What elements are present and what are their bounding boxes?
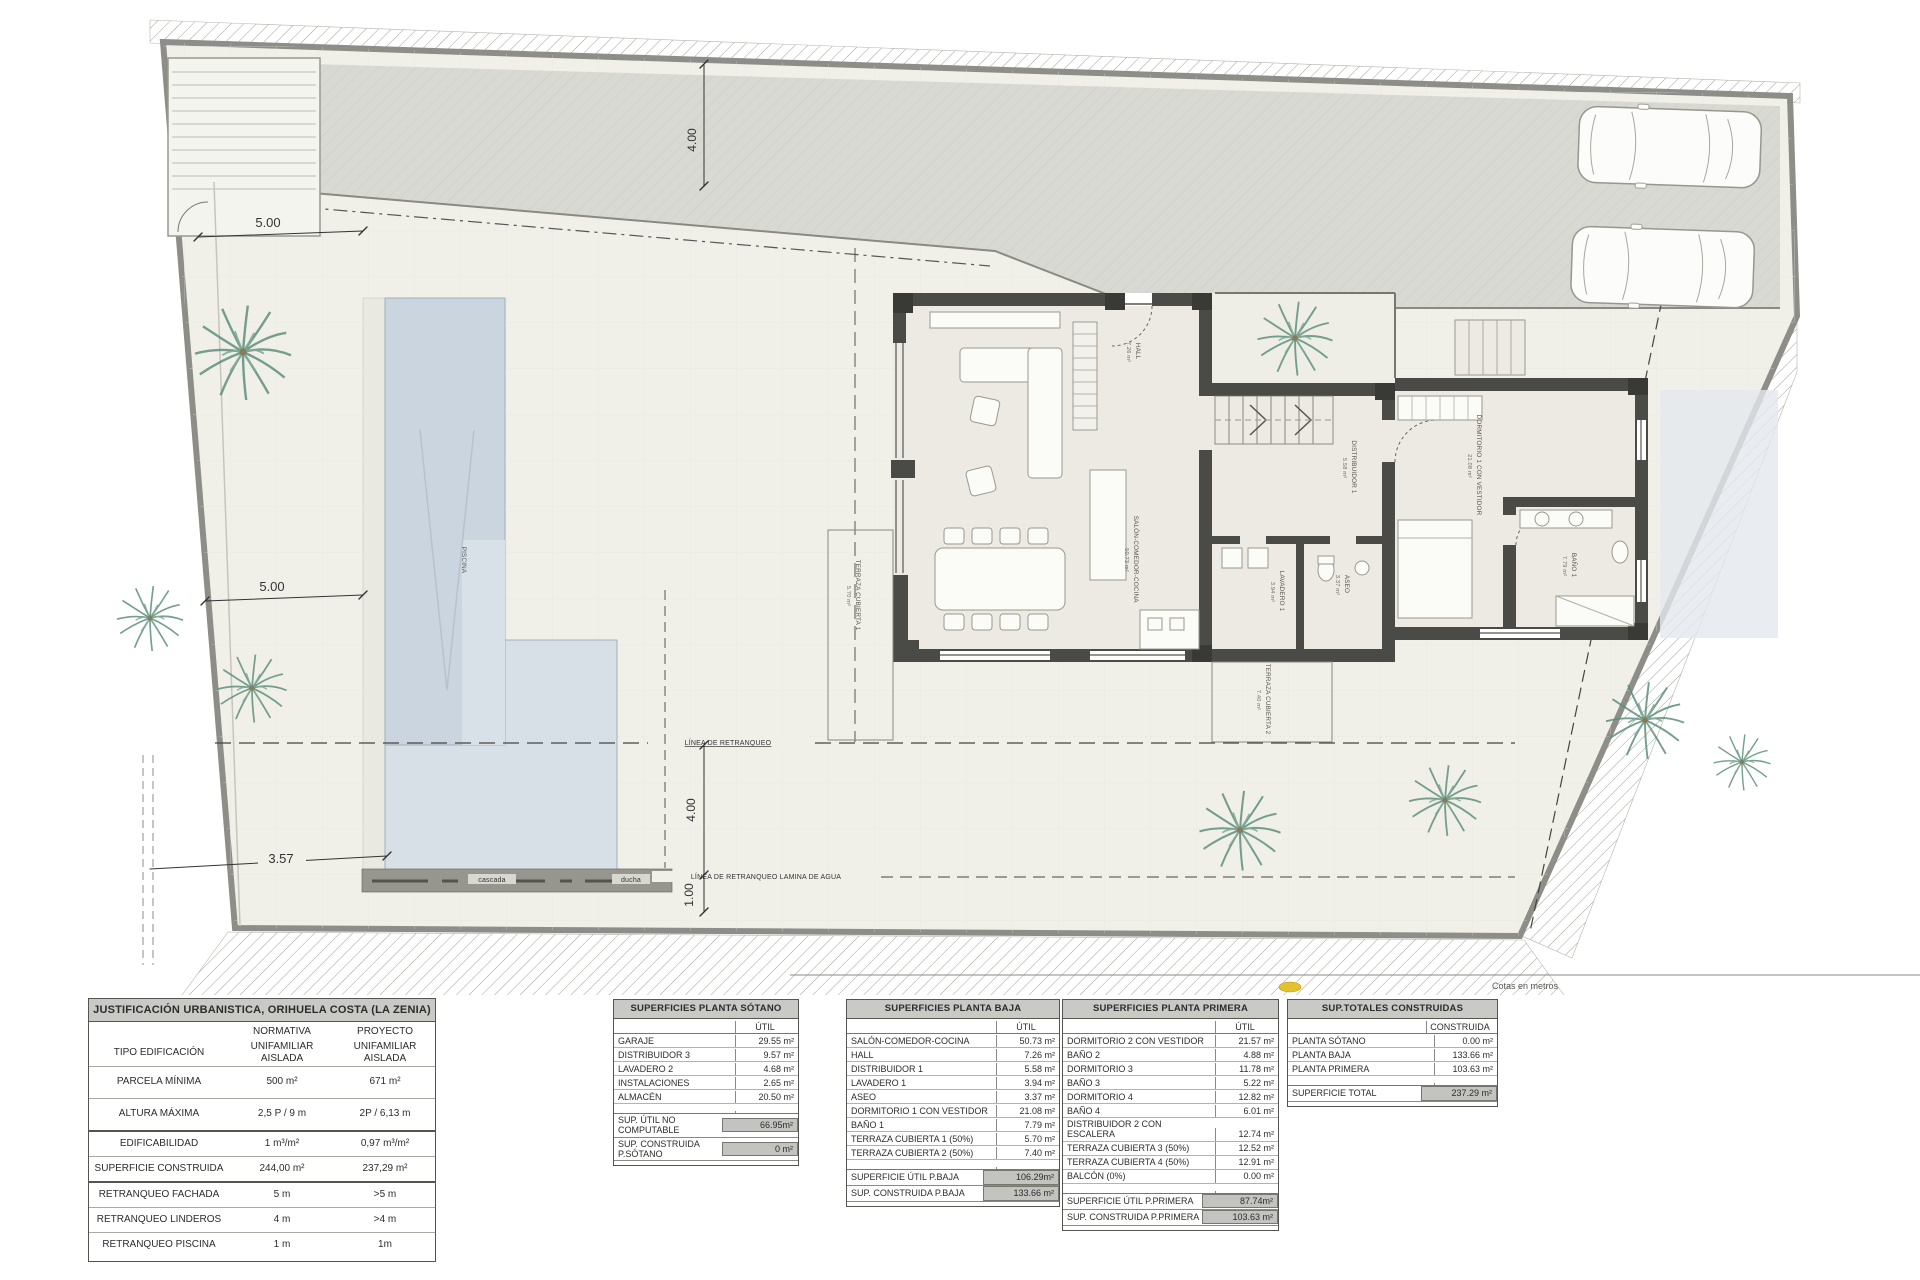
table-column-headers: ÚTIL: [847, 1019, 1059, 1034]
toilet-2: [1612, 541, 1628, 563]
table-row: PLANTA PRIMERA 103.63 m²: [1288, 1062, 1497, 1076]
room-area: 21.08 m²: [1466, 454, 1472, 478]
row-value: 5.22 m²: [1215, 1077, 1278, 1089]
total-label: SUPERFICIE ÚTIL P.PRIMERA: [1063, 1195, 1202, 1207]
total-value: 106.29m²: [983, 1170, 1059, 1184]
sink-2: [1569, 512, 1583, 526]
table-planta-sotano: SUPERFICIES PLANTA SÓTANO ÚTIL GARAJE 29…: [613, 999, 799, 1166]
room-area: 50.73 m²: [1123, 548, 1129, 572]
palm-tree: [1714, 734, 1771, 790]
offsite-dashed-lines: [143, 755, 153, 965]
row-normativa: 1 m³/m²: [229, 1138, 335, 1150]
row-value: 20.50 m²: [735, 1091, 798, 1103]
row-value: 5.58 m²: [996, 1063, 1059, 1075]
total-label: SUPERFICIE TOTAL: [1288, 1087, 1421, 1099]
table-row: TERRAZA CUBIERTA 1 (50%) 5.70 m²: [847, 1132, 1059, 1146]
row-label: DORMITORIO 3: [1063, 1063, 1215, 1075]
room-area: 7.26 m²: [1125, 342, 1131, 362]
table-planta-baja: SUPERFICIES PLANTA BAJA ÚTIL SALÓN-COMED…: [846, 999, 1060, 1207]
row-label: DORMITORIO 1 CON VESTIDOR: [847, 1105, 996, 1117]
row-label: ALTURA MÁXIMA: [89, 1108, 229, 1120]
table-row: BAÑO 4 6.01 m²: [1063, 1104, 1278, 1118]
table-column-headers: NORMATIVA PROYECTO: [89, 1022, 435, 1040]
row-value: 2.65 m²: [735, 1077, 798, 1089]
room-name: DORMITORIO 1 CON VESTIDOR: [1475, 415, 1482, 516]
units-note: Cotas en metros: [1492, 981, 1559, 991]
row-label: TERRAZA CUBIERTA 4 (50%): [1063, 1156, 1215, 1168]
row-label: DISTRIBUIDOR 3: [614, 1049, 735, 1061]
table-total-row: SUP. CONSTRUIDA P.PRIMERA 103.63 m²: [1063, 1210, 1278, 1226]
row-proyecto: 2P / 6,13 m: [335, 1108, 435, 1120]
entrance-ramp: [168, 58, 320, 236]
dim-text: 5.00: [259, 579, 284, 594]
row-label: BAÑO 3: [1063, 1077, 1215, 1089]
table-total-row: SUP. CONSTRUIDA P.BAJA 133.66 m²: [847, 1186, 1059, 1202]
armchair-2: [965, 465, 997, 497]
total-value: 66.95m²: [722, 1118, 798, 1132]
room-area: 5.70 m²: [845, 586, 851, 606]
sink-1: [1535, 512, 1549, 526]
table-row: DORMITORIO 1 CON VESTIDOR 21.08 m²: [847, 1104, 1059, 1118]
row-proyecto: 0,97 m³/m²: [335, 1138, 435, 1150]
total-label: SUP. ÚTIL NO COMPUTABLE: [614, 1114, 722, 1137]
table-gap: [614, 1104, 798, 1113]
table-row: HALL 7.26 m²: [847, 1048, 1059, 1062]
room-area: 3.94 m²: [1269, 582, 1275, 602]
table-row: BAÑO 3 5.22 m²: [1063, 1076, 1278, 1090]
room-area: 5.58 m²: [1341, 458, 1347, 478]
dim-text: 4.00: [685, 128, 699, 152]
row-value: 12.91 m²: [1215, 1156, 1278, 1168]
row-label: RETRANQUEO FACHADA: [89, 1189, 229, 1201]
row-label: RETRANQUEO PISCINA: [89, 1239, 229, 1251]
table-title: SUPERFICIES PLANTA SÓTANO: [613, 999, 799, 1019]
row-proyecto: >4 m: [335, 1214, 435, 1226]
total-value: 0 m²: [722, 1142, 798, 1156]
row-label: RETRANQUEO LINDEROS: [89, 1214, 229, 1226]
dim-text: 5.00: [255, 215, 280, 230]
total-label: SUP. CONSTRUIDA P.BAJA: [847, 1187, 983, 1199]
cascada-label: cascada: [478, 877, 505, 884]
row-value: 133.66 m²: [1434, 1049, 1497, 1061]
total-value: 103.63 m²: [1202, 1210, 1278, 1224]
row-label: BAÑO 4: [1063, 1105, 1215, 1117]
room-name: HALL: [1134, 343, 1141, 360]
row-label: PLANTA SÓTANO: [1288, 1035, 1434, 1047]
table-row: PARCELA MÍNIMA 500 m² 671 m²: [89, 1067, 435, 1099]
row-value: 7.79 m²: [996, 1119, 1059, 1131]
table-row: DISTRIBUIDOR 2 CON ESCALERA 12.74 m²: [1063, 1118, 1278, 1142]
table-row: ALMACÉN 20.50 m²: [614, 1090, 798, 1104]
table-column-headers: ÚTIL: [614, 1019, 798, 1034]
row-label: TERRAZA CUBIERTA 3 (50%): [1063, 1142, 1215, 1154]
table-column-headers: ÚTIL: [1063, 1019, 1278, 1034]
row-value: 6.01 m²: [1215, 1105, 1278, 1117]
table-row: PLANTA BAJA 133.66 m²: [1288, 1048, 1497, 1062]
row-label: HALL: [847, 1049, 996, 1061]
row-proyecto: 671 m²: [335, 1076, 435, 1088]
exterior-steps: [1455, 320, 1525, 375]
aseo-sink: [1355, 561, 1369, 575]
row-proyecto: UNIFAMILIAR AISLADA: [335, 1041, 435, 1064]
row-proyecto: 237,29 m²: [335, 1163, 435, 1175]
row-value: 9.57 m²: [735, 1049, 798, 1061]
row-value: 21.08 m²: [996, 1105, 1059, 1117]
table-row: ASEO 3.37 m²: [847, 1090, 1059, 1104]
table-total-row: SUP. CONSTRUIDA P.SÓTANO 0 m²: [614, 1138, 798, 1162]
room-name: LAVADERO 1: [1278, 571, 1285, 612]
table-total-row: SUPERFICIE TOTAL 237.29 m²: [1288, 1085, 1497, 1102]
table-column-headers: CONSTRUIDA: [1288, 1019, 1497, 1034]
room-name: TERRAZA CUBIERTA 2: [1264, 664, 1271, 735]
row-value: 4.88 m²: [1215, 1049, 1278, 1061]
row-value: 4.68 m²: [735, 1063, 798, 1075]
row-label: ASEO: [847, 1091, 996, 1103]
total-value: 237.29 m²: [1421, 1086, 1497, 1100]
row-value: 21.57 m²: [1215, 1035, 1278, 1047]
row-label: BALCÓN (0%): [1063, 1170, 1215, 1182]
dim-text: 4.00: [684, 798, 698, 822]
row-label: PLANTA BAJA: [1288, 1049, 1434, 1061]
table-row: TERRAZA CUBIERTA 2 (50%) 7.40 m²: [847, 1146, 1059, 1160]
col-util: ÚTIL: [1215, 1021, 1278, 1033]
table-row: DISTRIBUIDOR 3 9.57 m²: [614, 1048, 798, 1062]
col-construida: CONSTRUIDA: [1426, 1021, 1497, 1033]
table-gap: [1288, 1076, 1497, 1085]
row-label: INSTALACIONES: [614, 1077, 735, 1089]
row-normativa: 244,00 m²: [229, 1163, 335, 1175]
table-gap: [847, 1160, 1059, 1169]
room-name: ASEO: [1343, 575, 1350, 593]
table-row: DISTRIBUIDOR 1 5.58 m²: [847, 1062, 1059, 1076]
row-label: TERRAZA CUBIERTA 2 (50%): [847, 1147, 996, 1159]
table-planta-primera: SUPERFICIES PLANTA PRIMERA ÚTIL DORMITOR…: [1062, 999, 1279, 1231]
row-normativa: 5 m: [229, 1189, 335, 1201]
room-area: 3.37 m²: [1334, 575, 1340, 595]
floor-plan-sheet: PISCINA cascada ducha LÍNEA DE RETRANQUE…: [0, 0, 1920, 1280]
table-row: SALÓN-COMEDOR-COCINA 50.73 m²: [847, 1034, 1059, 1048]
row-label: DORMITORIO 2 CON VESTIDOR: [1063, 1035, 1215, 1047]
room-name: TERRAZA CUBIERTA 1: [854, 560, 861, 631]
table-row: RETRANQUEO FACHADA 5 m >5 m: [89, 1183, 435, 1208]
table-title: JUSTIFICACIÓN URBANISTICA, ORIHUELA COST…: [88, 998, 436, 1022]
car-2: [1570, 222, 1755, 312]
pool-label: PISCINA: [460, 547, 467, 574]
room-area: 7.79 m²: [1561, 556, 1567, 576]
table-row: INSTALACIONES 2.65 m²: [614, 1076, 798, 1090]
car-1: [1577, 102, 1762, 192]
table-row: BAÑO 2 4.88 m²: [1063, 1048, 1278, 1062]
yellow-marker: [1279, 982, 1301, 992]
row-value: 7.26 m²: [996, 1049, 1059, 1061]
washer: [1222, 548, 1242, 568]
row-normativa: 500 m²: [229, 1076, 335, 1088]
table-row: EDIFICABILIDAD 1 m³/m² 0,97 m³/m²: [89, 1132, 435, 1157]
room-name: SALÓN-COMEDOR-COCINA: [1132, 516, 1141, 604]
row-label: DISTRIBUIDOR 2 CON ESCALERA: [1063, 1118, 1215, 1141]
table-gap: [1063, 1184, 1278, 1193]
pool-steps: [462, 540, 505, 745]
row-label: DORMITORIO 4: [1063, 1091, 1215, 1103]
table-total-row: SUP. ÚTIL NO COMPUTABLE 66.95m²: [614, 1113, 798, 1138]
row-label: BAÑO 1: [847, 1119, 996, 1131]
table-title: SUPERFICIES PLANTA BAJA: [846, 999, 1060, 1019]
gravel-strip: [1660, 390, 1778, 638]
row-normativa: 4 m: [229, 1214, 335, 1226]
dining-table: [935, 548, 1065, 610]
row-label: TIPO EDIFICACIÓN: [89, 1047, 229, 1059]
table-row: PLANTA SÓTANO 0.00 m²: [1288, 1034, 1497, 1048]
row-normativa: 1 m: [229, 1239, 335, 1251]
table-row: DORMITORIO 3 11.78 m²: [1063, 1062, 1278, 1076]
total-value: 87.74m²: [1202, 1194, 1278, 1208]
row-value: 3.94 m²: [996, 1077, 1059, 1089]
row-label: TERRAZA CUBIERTA 1 (50%): [847, 1133, 996, 1145]
total-label: SUP. CONSTRUIDA P.PRIMERA: [1063, 1211, 1202, 1223]
table-row: ALTURA MÁXIMA 2,5 P / 9 m 2P / 6,13 m: [89, 1099, 435, 1132]
site-plan-drawing: PISCINA cascada ducha LÍNEA DE RETRANQUE…: [0, 0, 1920, 995]
row-label: GARAJE: [614, 1035, 735, 1047]
table-row: TERRAZA CUBIERTA 3 (50%) 12.52 m²: [1063, 1142, 1278, 1156]
row-value: 12.82 m²: [1215, 1091, 1278, 1103]
row-value: 12.52 m²: [1215, 1142, 1278, 1154]
table-row: TERRAZA CUBIERTA 4 (50%) 12.91 m²: [1063, 1156, 1278, 1170]
row-label: LAVADERO 1: [847, 1077, 996, 1089]
row-label: DISTRIBUIDOR 1: [847, 1063, 996, 1075]
kitchen-island: [1090, 470, 1126, 580]
table-row: DORMITORIO 2 CON VESTIDOR 21.57 m²: [1063, 1034, 1278, 1048]
row-value: 29.55 m²: [735, 1035, 798, 1047]
row-label: SALÓN-COMEDOR-COCINA: [847, 1035, 996, 1047]
row-normativa: UNIFAMILIAR AISLADA: [229, 1041, 335, 1064]
table-row: BAÑO 1 7.79 m²: [847, 1118, 1059, 1132]
dim-text: 3.57: [268, 851, 293, 866]
table-totales-construidas: SUP.TOTALES CONSTRUIDAS CONSTRUIDA PLANT…: [1287, 999, 1498, 1107]
pool-deck: [363, 298, 385, 872]
table-row: SUPERFICIE CONSTRUIDA 244,00 m² 237,29 m…: [89, 1157, 435, 1183]
row-label: SUPERFICIE CONSTRUIDA: [89, 1163, 229, 1175]
retranqueo-agua-label: LÍNEA DE RETRANQUEO LAMINA DE AGUA: [691, 872, 841, 881]
col-normativa: NORMATIVA: [229, 1026, 335, 1038]
row-label: ALMACÉN: [614, 1091, 735, 1103]
bath-counter: [1520, 510, 1612, 528]
row-label: LAVADERO 2: [614, 1063, 735, 1075]
row-label: PARCELA MÍNIMA: [89, 1076, 229, 1088]
row-label: BAÑO 2: [1063, 1049, 1215, 1061]
table-row: DORMITORIO 4 12.82 m²: [1063, 1090, 1278, 1104]
row-label: PLANTA PRIMERA: [1288, 1063, 1434, 1075]
row-value: 0.00 m²: [1215, 1170, 1278, 1182]
bed: [1398, 520, 1472, 618]
table-row: LAVADERO 1 3.94 m²: [847, 1076, 1059, 1090]
row-value: 50.73 m²: [996, 1035, 1059, 1047]
row-proyecto: >5 m: [335, 1189, 435, 1201]
col-util: ÚTIL: [996, 1021, 1059, 1033]
room-area: 7.40 m²: [1255, 690, 1261, 710]
row-value: 7.40 m²: [996, 1147, 1059, 1159]
row-value: 12.74 m²: [1215, 1128, 1278, 1140]
row-value: 103.63 m²: [1434, 1063, 1497, 1075]
dryer: [1248, 548, 1268, 568]
table-total-row: SUPERFICIE ÚTIL P.PRIMERA 87.74m²: [1063, 1193, 1278, 1210]
row-normativa: 2,5 P / 9 m: [229, 1108, 335, 1120]
sideboard: [930, 312, 1060, 328]
armchair-1: [970, 396, 1001, 427]
row-value: 5.70 m²: [996, 1133, 1059, 1145]
dim-text: 1.00: [682, 883, 696, 907]
row-proyecto: 1m: [335, 1239, 435, 1251]
table-row: RETRANQUEO PISCINA 1 m 1m: [89, 1233, 435, 1257]
room-name: BAÑO 1: [1570, 553, 1579, 578]
palm-tree: [117, 586, 183, 651]
col-util: ÚTIL: [735, 1021, 798, 1033]
table-row: RETRANQUEO LINDEROS 4 m >4 m: [89, 1208, 435, 1233]
total-label: SUPERFICIE ÚTIL P.BAJA: [847, 1171, 983, 1183]
row-label: EDIFICABILIDAD: [89, 1138, 229, 1150]
table-row: GARAJE 29.55 m²: [614, 1034, 798, 1048]
row-value: 3.37 m²: [996, 1091, 1059, 1103]
row-value: 11.78 m²: [1215, 1063, 1278, 1075]
col-proyecto: PROYECTO: [335, 1026, 435, 1038]
total-value: 133.66 m²: [983, 1186, 1059, 1200]
retranqueo-label: LÍNEA DE RETRANQUEO: [685, 738, 772, 747]
table-row: TIPO EDIFICACIÓN UNIFAMILIAR AISLADA UNI…: [89, 1040, 435, 1067]
table-total-row: SUPERFICIE ÚTIL P.BAJA 106.29m²: [847, 1169, 1059, 1186]
total-label: SUP. CONSTRUIDA P.SÓTANO: [614, 1138, 722, 1161]
table-row: BALCÓN (0%) 0.00 m²: [1063, 1170, 1278, 1184]
table-title: SUP.TOTALES CONSTRUIDAS: [1287, 999, 1498, 1019]
table-title: SUPERFICIES PLANTA PRIMERA: [1062, 999, 1279, 1019]
table-justificacion-urbanistica: JUSTIFICACIÓN URBANISTICA, ORIHUELA COST…: [88, 998, 436, 1262]
table-row: LAVADERO 2 4.68 m²: [614, 1062, 798, 1076]
row-value: 0.00 m²: [1434, 1035, 1497, 1047]
sofa-side: [1028, 348, 1062, 478]
room-name: DISTRIBUIDOR 1: [1350, 440, 1357, 493]
ducha-label: ducha: [621, 877, 641, 884]
